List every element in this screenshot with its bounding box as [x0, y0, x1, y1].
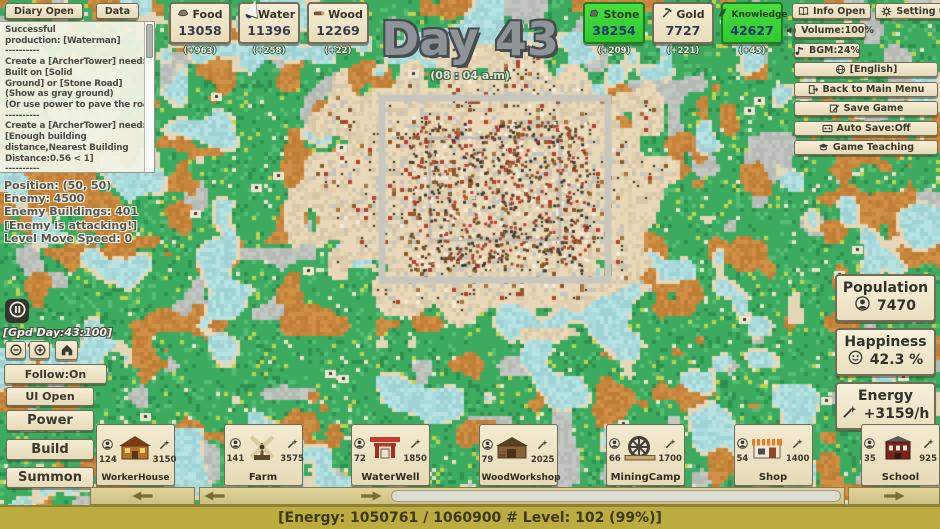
building-art-shop — [749, 434, 785, 465]
diary-open-button[interactable]: Diary Open — [5, 3, 83, 19]
resource-food: Food13058(+963) — [169, 2, 231, 56]
bottom-status-bar: [Energy: 1050761 / 1060900 # Level: 102 … — [0, 505, 940, 529]
gold-icon — [661, 7, 673, 22]
person-icon — [855, 296, 870, 315]
menu-button-bgm-24[interactable]: BGM:24% — [794, 43, 860, 58]
resource-value: 38254 — [592, 23, 636, 38]
resource-value: 12269 — [316, 23, 360, 38]
building-cost: 1850 — [403, 454, 427, 464]
scroll-left-button[interactable] — [90, 487, 195, 505]
log-scrollbar-thumb[interactable] — [146, 24, 153, 58]
language-icon — [835, 64, 846, 75]
log-lines: Successfulproduction: [Waterman]--------… — [0, 22, 144, 172]
resource-name: Water — [258, 8, 295, 21]
minus-circle-icon — [10, 344, 22, 356]
wand-icon — [287, 434, 298, 453]
volume-icon — [786, 25, 797, 36]
right-menu-top-row: Info OpenSetting Open — [792, 3, 940, 19]
menu-button-english[interactable]: [English] — [794, 62, 938, 77]
food-icon — [177, 7, 189, 22]
menu-button-label: Back to Main Menu — [823, 84, 925, 95]
building-name: WaterWell — [354, 471, 427, 485]
energy-box: Energy +3159/h — [835, 382, 936, 430]
building-card-woodworkshop[interactable]: 792025WoodWorkshop — [479, 424, 558, 486]
wand-icon — [923, 434, 934, 453]
resource-value: 13058 — [178, 23, 222, 38]
person-icon — [102, 435, 113, 454]
resource-box-knowledge[interactable]: Knowledge42627 — [721, 2, 783, 44]
log-line: Successful — [5, 25, 142, 36]
building-card-waterwell[interactable]: 721850WaterWell — [351, 424, 430, 486]
menu-button-label: Game Teaching — [833, 142, 914, 153]
log-scrollbar[interactable] — [144, 22, 154, 172]
right-menu-list: Volume:100%BGM:24%[English]Back to Main … — [794, 23, 938, 155]
building-count: 66 — [609, 454, 621, 464]
building-name: WoodWorkshop — [482, 472, 555, 485]
energy-label: Energy — [858, 388, 913, 404]
resource-delta: (+221) — [667, 46, 700, 56]
wand-icon — [159, 435, 170, 454]
wand-icon — [537, 435, 548, 454]
building-cost: 1700 — [658, 454, 682, 464]
knowledge-icon — [716, 7, 728, 22]
stat-line: [Enemy is attacking!] — [4, 219, 138, 232]
resource-value: 11396 — [247, 23, 291, 38]
building-card-workerhouse[interactable]: 1243150WorkerHouse — [96, 424, 175, 486]
summon-button[interactable]: Summon — [6, 467, 94, 488]
building-name: MiningCamp — [609, 471, 682, 485]
arrow-left-icon — [131, 487, 154, 506]
resource-name: Food — [192, 8, 222, 21]
building-card-bar: 1243150WorkerHouse1413575Farm721850Water… — [96, 424, 940, 486]
building-count: 141 — [227, 454, 245, 464]
population-value: 7470 — [877, 298, 916, 314]
menu-button-label: Info Open — [813, 6, 865, 17]
menu-button-auto-save-off[interactable]: Auto Save:Off — [794, 121, 938, 136]
exit-icon — [808, 84, 819, 95]
center-home-button[interactable] — [55, 340, 78, 360]
card-scrollbar[interactable] — [199, 487, 845, 505]
log-line: (Or use power to pave the road) — [5, 100, 142, 111]
building-art-woodworkshop — [494, 434, 530, 465]
building-card-miningcamp[interactable]: 661700MiningCamp — [606, 424, 685, 486]
resource-wood: Wood12269(+22) — [307, 2, 369, 56]
building-cost: 925 — [919, 454, 937, 464]
stat-line: Enemy Buildings: 401 — [4, 205, 138, 218]
stat-line: Enemy: 4500 — [4, 192, 138, 205]
water-icon — [243, 7, 255, 22]
building-art-workerhouse — [117, 434, 153, 465]
arrow-right-icon — [883, 487, 906, 506]
gear-icon — [881, 6, 892, 17]
resource-box-water[interactable]: Water11396 — [238, 2, 300, 44]
arrow-left-icon — [203, 487, 226, 506]
menu-button-save-game[interactable]: Save Game — [794, 101, 938, 116]
happiness-value: 42.3 % — [870, 352, 923, 368]
autosave-icon — [822, 123, 833, 134]
happiness-label: Happiness — [844, 334, 926, 350]
plus-circle-icon — [34, 344, 46, 356]
energy-value: +3159/h — [864, 406, 930, 422]
zoom-out-button[interactable] — [5, 341, 26, 359]
menu-button-volume-100[interactable]: Volume:100% — [794, 23, 866, 38]
wand-icon — [842, 404, 857, 423]
stone-icon — [588, 7, 600, 22]
building-count: 35 — [864, 454, 876, 464]
resource-delta: (+963) — [184, 46, 217, 56]
resource-stone: Stone38254(+209) — [583, 2, 645, 56]
resource-box-wood[interactable]: Wood12269 — [307, 2, 369, 44]
building-name: Shop — [737, 471, 810, 485]
arrow-right-icon — [360, 487, 383, 506]
log-line: ---------- — [5, 111, 142, 122]
resource-value: 42627 — [730, 23, 774, 38]
resource-group-right: Stone38254(+209)Gold7727(+221)Knowledge4… — [583, 2, 783, 56]
resource-name: Knowledge — [731, 10, 787, 20]
menu-button-label: Volume:100% — [801, 25, 874, 36]
resource-delta: (+22) — [325, 46, 352, 56]
scroll-right-button[interactable] — [848, 487, 940, 505]
building-card-school[interactable]: 35925School — [861, 424, 940, 486]
menu-button-setting-open[interactable]: Setting Open — [875, 3, 940, 19]
person-icon — [864, 434, 875, 453]
log-line: Built on [Solid — [5, 68, 142, 79]
building-count: 124 — [99, 455, 117, 465]
happiness-box: Happiness 42.3 % — [835, 328, 936, 376]
building-cost: 1400 — [786, 454, 810, 464]
person-icon — [609, 434, 620, 453]
menu-button-back-to-main-menu[interactable]: Back to Main Menu — [794, 82, 938, 97]
resource-value: 7727 — [666, 23, 701, 38]
power-button[interactable]: Power — [6, 410, 94, 431]
wand-icon — [665, 434, 676, 453]
teaching-icon — [818, 142, 829, 153]
top-left-buttons: Diary Open Data — [5, 3, 139, 19]
menu-button-game-teaching[interactable]: Game Teaching — [794, 140, 938, 155]
zoom-in-button[interactable] — [29, 341, 50, 359]
building-name: School — [864, 471, 937, 485]
card-scrollbar-track[interactable] — [391, 490, 841, 502]
resource-group-left: Food13058(+963)Water11396(+258)Wood12269… — [169, 2, 369, 56]
save-icon — [829, 103, 840, 114]
person-icon — [230, 434, 241, 453]
log-line: Create a [ArcherTower] need: — [5, 57, 142, 68]
resource-delta: (+209) — [598, 46, 631, 56]
person-icon — [737, 434, 748, 453]
build-button[interactable]: Build — [6, 439, 94, 460]
building-cost: 2025 — [531, 455, 555, 465]
building-art-farm — [244, 434, 280, 465]
info-icon — [798, 6, 809, 17]
building-count: 79 — [482, 455, 494, 465]
log-line: [Enough building — [5, 132, 142, 143]
follow-toggle-button[interactable]: Follow:On — [4, 364, 107, 384]
person-icon — [354, 434, 365, 453]
resource-box-stone[interactable]: Stone38254 — [583, 2, 645, 44]
population-box: Population 7470 — [835, 274, 936, 322]
pause-icon — [9, 301, 26, 322]
log-line: distance,Nearest Building — [5, 143, 142, 154]
pause-button[interactable] — [5, 299, 29, 323]
building-count: 54 — [737, 454, 749, 464]
stat-line: Level Move Speed: 0 — [4, 232, 138, 245]
population-label: Population — [843, 280, 928, 296]
resource-name: Stone — [603, 8, 639, 21]
building-art-waterwell — [367, 434, 403, 465]
wand-icon — [792, 434, 803, 453]
music-note-icon — [794, 45, 805, 56]
resource-name: Gold — [676, 8, 704, 21]
resource-delta: (+45) — [739, 46, 766, 56]
person-icon — [482, 435, 493, 454]
home-icon — [60, 343, 74, 357]
log-line: production: [Waterman] — [5, 36, 142, 47]
menu-button-label: Setting Open — [896, 6, 940, 17]
building-card-shop[interactable]: 541400Shop — [734, 424, 813, 486]
building-count: 72 — [354, 454, 366, 464]
menu-button-info-open[interactable]: Info Open — [792, 3, 871, 19]
log-line: (Show as gray ground) — [5, 89, 142, 100]
building-cost: 3575 — [280, 454, 304, 464]
resource-knowledge: Knowledge42627(+45) — [721, 2, 783, 56]
menu-button-label: Auto Save:Off — [837, 123, 911, 134]
building-name: WorkerHouse — [99, 472, 172, 485]
log-line: Distance:0.56 < 1] — [5, 154, 142, 165]
building-art-miningcamp — [622, 434, 658, 465]
wand-icon — [410, 434, 421, 453]
god-mode-text: [Gpd Day:43:100] — [3, 326, 112, 339]
log-line: ---------- — [5, 164, 142, 172]
log-line: Create a [ArcherTower] need: — [5, 121, 142, 132]
menu-button-label: [English] — [850, 64, 898, 75]
building-art-school — [880, 434, 916, 465]
menu-button-label: BGM:24% — [809, 45, 860, 56]
log-line: Ground] or [Stone Road] — [5, 79, 142, 90]
stat-line: Position: (50, 50) — [4, 179, 138, 192]
message-log-panel: Successfulproduction: [Waterman]--------… — [0, 21, 155, 173]
wood-icon — [313, 7, 325, 22]
resource-gold: Gold7727(+221) — [652, 2, 714, 56]
resource-delta: (+258) — [253, 46, 286, 56]
resource-name: Wood — [328, 8, 363, 21]
data-button[interactable]: Data — [96, 3, 139, 19]
ui-open-button[interactable]: UI Open — [6, 387, 94, 406]
smiley-icon — [848, 350, 863, 369]
energy-level-text: [Energy: 1050761 / 1060900 # Level: 102 … — [278, 510, 662, 526]
building-card-farm[interactable]: 1413575Farm — [224, 424, 303, 486]
resource-box-gold[interactable]: Gold7727 — [652, 2, 714, 44]
resource-box-food[interactable]: Food13058 — [169, 2, 231, 44]
menu-button-label: Save Game — [844, 103, 904, 114]
log-line: ---------- — [5, 46, 142, 57]
building-cost: 3150 — [153, 455, 177, 465]
game-stats-text: Position: (50, 50)Enemy: 4500Enemy Build… — [4, 179, 138, 245]
building-name: Farm — [227, 471, 300, 485]
resource-water: Water11396(+258) — [238, 2, 300, 56]
